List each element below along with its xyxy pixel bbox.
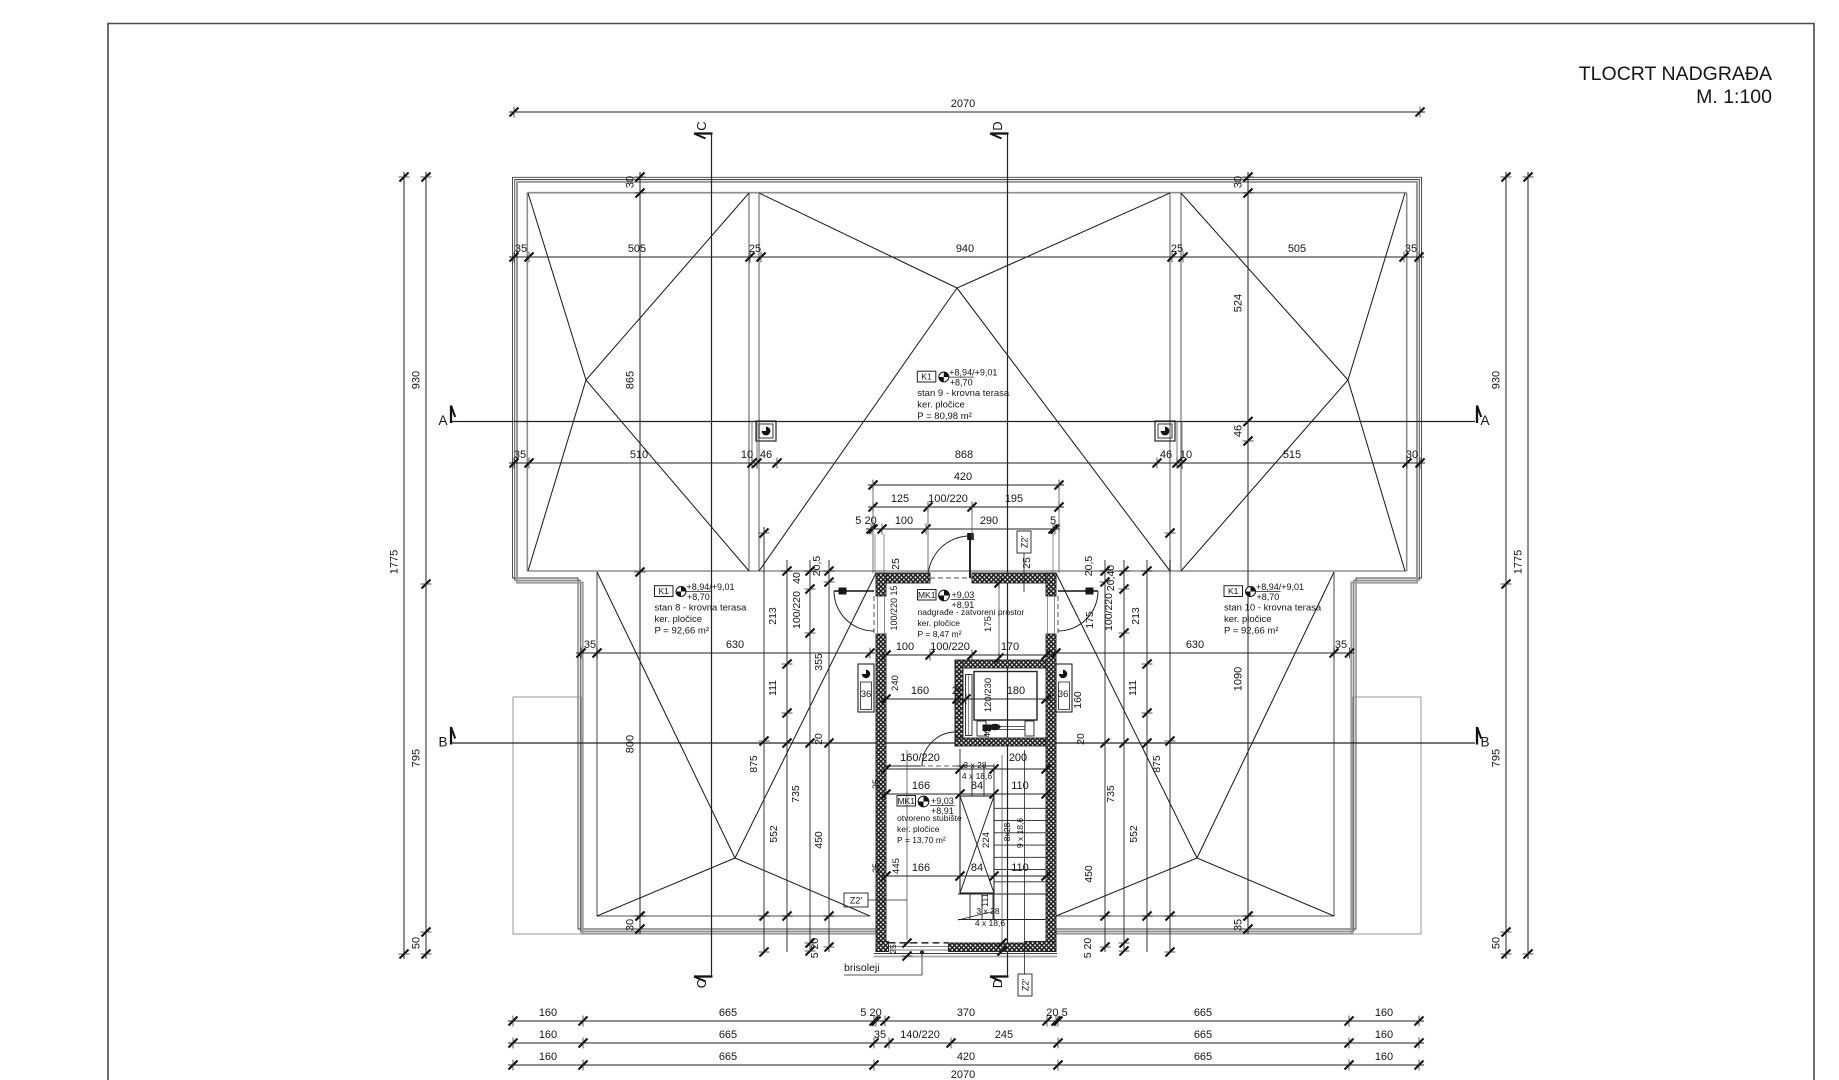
svg-text:5 20: 5 20 xyxy=(855,515,876,527)
svg-text:84: 84 xyxy=(971,862,983,874)
svg-text:450: 450 xyxy=(1083,865,1095,883)
svg-text:+8,70: +8,70 xyxy=(1257,592,1280,602)
svg-text:224: 224 xyxy=(981,832,992,848)
svg-text:505: 505 xyxy=(628,243,646,255)
svg-text:20,5: 20,5 xyxy=(1083,556,1095,577)
svg-text:D: D xyxy=(990,121,1005,130)
svg-text:100/220: 100/220 xyxy=(1103,593,1115,631)
svg-text:166: 166 xyxy=(912,780,930,792)
svg-text:175: 175 xyxy=(1084,611,1096,629)
svg-text:100: 100 xyxy=(896,641,914,653)
svg-text:160: 160 xyxy=(539,1007,557,1019)
svg-text:1090: 1090 xyxy=(1233,667,1245,691)
svg-text:25: 25 xyxy=(749,243,761,255)
svg-text:ker. pločice: ker. pločice xyxy=(1224,614,1272,625)
svg-text:9 x 18,6: 9 x 18,6 xyxy=(1015,818,1025,849)
svg-text:5 20: 5 20 xyxy=(809,938,821,959)
svg-text:100/220: 100/220 xyxy=(930,641,970,653)
svg-text:510: 510 xyxy=(630,449,648,461)
svg-text:35: 35 xyxy=(874,1029,886,1041)
svg-text:25: 25 xyxy=(871,863,881,873)
svg-text:665: 665 xyxy=(719,1029,737,1041)
svg-text:C: C xyxy=(694,979,709,988)
svg-text:40: 40 xyxy=(791,572,803,584)
svg-text:111: 111 xyxy=(980,893,990,907)
svg-text:+8,70: +8,70 xyxy=(687,592,710,602)
svg-text:35: 35 xyxy=(584,639,596,651)
svg-text:120/230: 120/230 xyxy=(983,678,994,712)
svg-text:245: 245 xyxy=(995,1029,1013,1041)
svg-text:930: 930 xyxy=(411,371,423,389)
svg-text:160: 160 xyxy=(539,1029,557,1041)
svg-text:A: A xyxy=(1480,413,1489,428)
svg-text:195: 195 xyxy=(1005,493,1023,505)
svg-text:C: C xyxy=(694,121,709,130)
svg-text:30: 30 xyxy=(1233,176,1245,188)
svg-text:2070: 2070 xyxy=(951,1069,975,1080)
svg-text:630: 630 xyxy=(726,639,744,651)
svg-text:4 x 18,6: 4 x 18,6 xyxy=(962,771,993,781)
svg-text:5 20: 5 20 xyxy=(1082,938,1094,959)
svg-text:160: 160 xyxy=(1375,1051,1393,1063)
svg-text:25: 25 xyxy=(890,558,902,570)
svg-text:290: 290 xyxy=(980,515,998,527)
svg-text:brisoleji: brisoleji xyxy=(844,962,880,974)
svg-text:4 x 18,6: 4 x 18,6 xyxy=(975,918,1006,928)
svg-text:110: 110 xyxy=(1011,780,1029,792)
svg-text:5: 5 xyxy=(1050,515,1056,527)
svg-text:20 5: 20 5 xyxy=(1046,1007,1067,1019)
svg-text:160: 160 xyxy=(1375,1029,1393,1041)
svg-text:+8,94/+9,01: +8,94/+9,01 xyxy=(687,582,735,592)
svg-text:Z2': Z2' xyxy=(1020,536,1030,549)
svg-text:735: 735 xyxy=(1105,785,1117,803)
svg-text:35: 35 xyxy=(1335,639,1347,651)
svg-text:940: 940 xyxy=(956,243,974,255)
svg-text:D: D xyxy=(990,979,1005,988)
svg-text:stan 10 - krovna terasa: stan 10 - krovna terasa xyxy=(1224,603,1322,614)
svg-text:20: 20 xyxy=(813,733,825,745)
svg-text:P = 13,70 m²: P = 13,70 m² xyxy=(897,835,946,845)
svg-text:K1: K1 xyxy=(921,372,932,382)
svg-text:stan 8 - krovna terasa: stan 8 - krovna terasa xyxy=(655,603,748,614)
svg-text:46: 46 xyxy=(1233,425,1245,437)
svg-text:213: 213 xyxy=(1130,607,1142,625)
svg-text:10: 10 xyxy=(1180,449,1192,461)
svg-text:nadgrađe - zatvoreni prostor: nadgrađe - zatvoreni prostor xyxy=(918,607,1025,617)
svg-text:K1: K1 xyxy=(1228,586,1239,596)
svg-text:868: 868 xyxy=(955,449,973,461)
svg-text:552: 552 xyxy=(1128,825,1140,843)
svg-text:160: 160 xyxy=(911,685,929,697)
svg-text:875: 875 xyxy=(748,755,760,773)
svg-text:930: 930 xyxy=(1491,371,1503,389)
svg-text:30: 30 xyxy=(625,176,637,188)
svg-text:50: 50 xyxy=(1491,937,1503,949)
svg-text:46: 46 xyxy=(1160,449,1172,461)
svg-text:ker. pločice: ker. pločice xyxy=(917,400,965,411)
svg-text:445: 445 xyxy=(891,858,902,874)
svg-text:795: 795 xyxy=(411,749,423,767)
svg-text:505: 505 xyxy=(1288,243,1306,255)
svg-text:111: 111 xyxy=(1127,680,1139,696)
svg-text:552: 552 xyxy=(768,825,780,843)
svg-text:170: 170 xyxy=(1001,641,1019,653)
svg-text:+9,03: +9,03 xyxy=(952,590,975,600)
svg-text:M. 1:100: M. 1:100 xyxy=(1696,86,1772,108)
svg-text:180: 180 xyxy=(1007,685,1025,697)
svg-text:3 x 28: 3 x 28 xyxy=(963,760,986,770)
svg-text:630: 630 xyxy=(1186,639,1204,651)
svg-text:355: 355 xyxy=(813,653,825,671)
svg-text:160: 160 xyxy=(539,1051,557,1063)
svg-text:+9,03: +9,03 xyxy=(931,796,954,806)
svg-text:420: 420 xyxy=(957,1051,975,1063)
svg-text:110: 110 xyxy=(1011,862,1029,874)
svg-text:665: 665 xyxy=(1194,1051,1212,1063)
svg-text:35: 35 xyxy=(514,449,526,461)
svg-text:20: 20 xyxy=(952,685,964,697)
svg-text:P = 92,66 m²: P = 92,66 m² xyxy=(655,626,709,637)
svg-text:125: 125 xyxy=(891,493,909,505)
svg-text:Z2': Z2' xyxy=(1021,979,1031,992)
svg-text:140/220: 140/220 xyxy=(900,1029,940,1041)
svg-text:5 20: 5 20 xyxy=(860,1007,881,1019)
svg-text:otvoreno stubište: otvoreno stubište xyxy=(897,813,962,823)
svg-text:795: 795 xyxy=(1491,749,1503,767)
svg-text:166: 166 xyxy=(912,862,930,874)
svg-text:1775: 1775 xyxy=(1513,550,1525,574)
svg-text:665: 665 xyxy=(1194,1007,1212,1019)
svg-text:100: 100 xyxy=(895,515,913,527)
svg-text:800: 800 xyxy=(625,735,637,753)
svg-text:2070: 2070 xyxy=(951,98,975,110)
svg-text:40: 40 xyxy=(983,728,992,737)
svg-text:370: 370 xyxy=(957,1007,975,1019)
svg-text:240: 240 xyxy=(890,675,901,691)
svg-text:515: 515 xyxy=(1283,449,1301,461)
svg-text:K1: K1 xyxy=(658,586,669,596)
svg-text:30: 30 xyxy=(1406,449,1418,461)
svg-text:20,5: 20,5 xyxy=(811,556,823,577)
svg-text:25: 25 xyxy=(1171,243,1183,255)
svg-text:46: 46 xyxy=(760,449,772,461)
svg-text:30: 30 xyxy=(625,919,637,931)
svg-text:100/220: 100/220 xyxy=(928,493,968,505)
svg-text:35: 35 xyxy=(1233,919,1245,931)
svg-text:B: B xyxy=(438,735,447,750)
svg-text:ker. pločice: ker. pločice xyxy=(655,614,703,625)
svg-text:160/220: 160/220 xyxy=(900,752,940,764)
svg-text:665: 665 xyxy=(719,1007,737,1019)
svg-text:213: 213 xyxy=(767,607,779,625)
svg-text:100/220 15: 100/220 15 xyxy=(889,585,899,630)
svg-text:36: 36 xyxy=(861,689,872,700)
svg-text:+8,94/+9,01: +8,94/+9,01 xyxy=(949,368,997,378)
svg-text:450: 450 xyxy=(813,831,825,849)
svg-text:TLOCRT NADGRAĐA: TLOCRT NADGRAĐA xyxy=(1579,63,1772,85)
svg-text:P = 80,98 m²: P = 80,98 m² xyxy=(917,411,971,422)
svg-text:420: 420 xyxy=(954,471,972,483)
svg-text:+8,94/+9,01: +8,94/+9,01 xyxy=(1256,582,1304,592)
svg-text:524: 524 xyxy=(1233,294,1245,312)
svg-text:Z2': Z2' xyxy=(850,896,863,906)
svg-text:665: 665 xyxy=(1194,1029,1212,1041)
svg-text:865: 865 xyxy=(625,371,637,389)
svg-text:stan 9 - krovna terasa: stan 9 - krovna terasa xyxy=(917,388,1010,399)
svg-text:B: B xyxy=(1480,735,1489,750)
svg-text:160: 160 xyxy=(1072,691,1084,709)
svg-text:50: 50 xyxy=(411,937,423,949)
svg-text:111: 111 xyxy=(767,680,779,696)
svg-text:160: 160 xyxy=(1375,1007,1393,1019)
svg-text:84: 84 xyxy=(971,780,983,792)
svg-text:MK1: MK1 xyxy=(918,590,936,600)
svg-text:ker. pločice: ker. pločice xyxy=(897,824,940,834)
svg-text:10: 10 xyxy=(741,449,753,461)
svg-text:MK1: MK1 xyxy=(897,796,915,806)
svg-text:A: A xyxy=(438,413,447,428)
svg-text:P = 8,47 m²: P = 8,47 m² xyxy=(918,629,962,639)
svg-text:20,40: 20,40 xyxy=(1105,565,1117,591)
svg-text:25: 25 xyxy=(888,944,898,954)
svg-text:25: 25 xyxy=(871,779,881,789)
svg-text:35: 35 xyxy=(515,243,527,255)
svg-text:735: 735 xyxy=(790,785,802,803)
svg-text:175: 175 xyxy=(983,616,994,632)
svg-text:100/220: 100/220 xyxy=(791,591,803,629)
svg-text:36: 36 xyxy=(1058,689,1069,700)
svg-text:1775: 1775 xyxy=(389,550,401,574)
svg-text:8x28: 8x28 xyxy=(1002,823,1012,842)
svg-text:875: 875 xyxy=(1151,755,1163,773)
svg-text:665: 665 xyxy=(719,1051,737,1063)
svg-text:P = 92,66 m²: P = 92,66 m² xyxy=(1224,626,1278,637)
svg-text:35: 35 xyxy=(1405,243,1417,255)
svg-text:25: 25 xyxy=(1021,557,1033,569)
svg-text:ker. pločice: ker. pločice xyxy=(918,618,961,628)
svg-text:+8,70: +8,70 xyxy=(950,377,973,387)
svg-text:200: 200 xyxy=(1009,752,1027,764)
svg-text:20: 20 xyxy=(1075,733,1087,745)
